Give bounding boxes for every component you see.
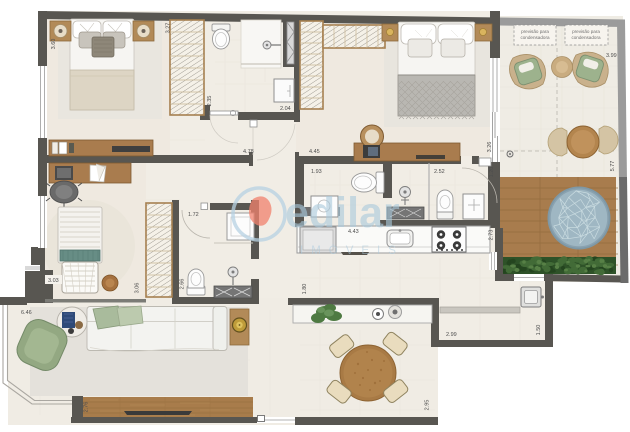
svg-text:condensadora: condensadora <box>571 35 601 40</box>
svg-text:4.43: 4.43 <box>348 229 359 235</box>
svg-text:3.26: 3.26 <box>487 142 493 153</box>
svg-text:previsão para: previsão para <box>572 29 600 34</box>
svg-text:1.50: 1.50 <box>536 325 542 336</box>
svg-text:2.35: 2.35 <box>207 96 213 107</box>
svg-text:2.52: 2.52 <box>434 169 445 175</box>
svg-text:1.80: 1.80 <box>302 284 308 295</box>
svg-text:3.03: 3.03 <box>48 278 59 284</box>
svg-text:3.60: 3.60 <box>51 39 57 50</box>
svg-text:previsão para: previsão para <box>521 29 549 34</box>
svg-text:1.93: 1.93 <box>311 169 322 175</box>
svg-text:2.73: 2.73 <box>489 230 495 241</box>
svg-text:edilar: edilar <box>285 189 400 237</box>
svg-text:5.77: 5.77 <box>610 161 616 172</box>
svg-text:2.99: 2.99 <box>446 332 457 338</box>
svg-text:IMÓVEIS: IMÓVEIS <box>300 244 404 257</box>
svg-text:2.76: 2.76 <box>84 402 90 413</box>
svg-text:4.78: 4.78 <box>243 149 254 155</box>
svg-text:3.06: 3.06 <box>135 283 141 294</box>
svg-text:3.27: 3.27 <box>166 23 172 34</box>
svg-text:1.72: 1.72 <box>188 212 199 218</box>
svg-text:4.45: 4.45 <box>309 149 320 155</box>
svg-text:2.04: 2.04 <box>280 106 291 112</box>
svg-text:6.46: 6.46 <box>21 310 32 316</box>
svg-text:2.95: 2.95 <box>425 400 431 411</box>
svg-text:condensadora: condensadora <box>520 35 550 40</box>
svg-text:3.99: 3.99 <box>606 53 617 59</box>
svg-text:1.20: 1.20 <box>489 167 495 178</box>
svg-text:2.66: 2.66 <box>180 279 186 290</box>
